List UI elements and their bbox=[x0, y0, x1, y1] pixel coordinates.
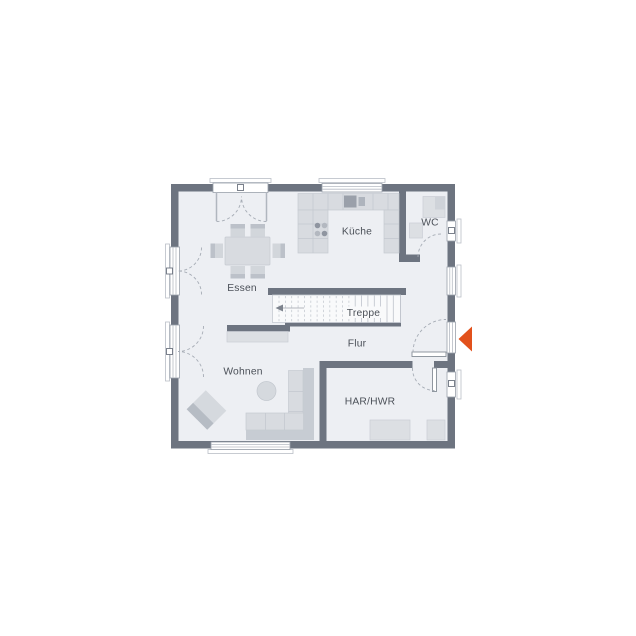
room-label-essen: Essen bbox=[227, 283, 257, 294]
room-label-kueche: Küche bbox=[342, 227, 372, 238]
staircase bbox=[273, 295, 401, 323]
wall-har-top bbox=[320, 361, 413, 368]
window-top bbox=[322, 184, 382, 193]
entrance-arrow-icon bbox=[459, 327, 473, 352]
room-label-wohnen: Wohnen bbox=[223, 367, 262, 378]
window-bottom bbox=[211, 442, 290, 450]
window-handle-icon bbox=[167, 349, 173, 355]
room-label-wc: WC bbox=[421, 218, 439, 229]
coffee-table bbox=[257, 382, 276, 401]
wall-har-stub bbox=[434, 361, 448, 368]
room-label-treppe: Treppe bbox=[347, 308, 381, 319]
wall-wohnen-stub bbox=[227, 325, 290, 332]
room-label-flur: Flur bbox=[348, 339, 367, 350]
wall-stair-top bbox=[268, 288, 406, 295]
har-door-leaf bbox=[433, 368, 437, 392]
wc-basin-top bbox=[435, 197, 445, 210]
floor-plan: Küche WC Essen Treppe Flur Wohnen HAR/HW… bbox=[0, 0, 636, 636]
wall-wc-bottom bbox=[399, 255, 420, 263]
wall-har-left bbox=[320, 361, 327, 441]
room-label-har-hwr: HAR/HWR bbox=[345, 397, 396, 408]
wall-kitchen-wc bbox=[399, 191, 406, 262]
sofa-back-right bbox=[303, 368, 314, 440]
window-handle-icon bbox=[167, 268, 173, 274]
entry-door-opening bbox=[447, 322, 456, 353]
door-handle-icon bbox=[238, 185, 244, 191]
har-appliances bbox=[370, 420, 445, 440]
window-right-mid bbox=[447, 267, 456, 295]
dining-table bbox=[225, 237, 270, 265]
sofa-seat-bottom bbox=[246, 413, 304, 430]
window-handle-icon bbox=[449, 381, 455, 387]
sofa-back-bottom bbox=[246, 430, 314, 440]
sideboard bbox=[227, 332, 288, 343]
appliance-2 bbox=[427, 420, 445, 440]
kitchen-sink-2 bbox=[359, 197, 366, 206]
kitchen-sink bbox=[344, 196, 357, 208]
appliance-1 bbox=[370, 420, 410, 440]
window-handle-icon bbox=[449, 228, 455, 234]
entry-door-leaf bbox=[412, 352, 446, 357]
